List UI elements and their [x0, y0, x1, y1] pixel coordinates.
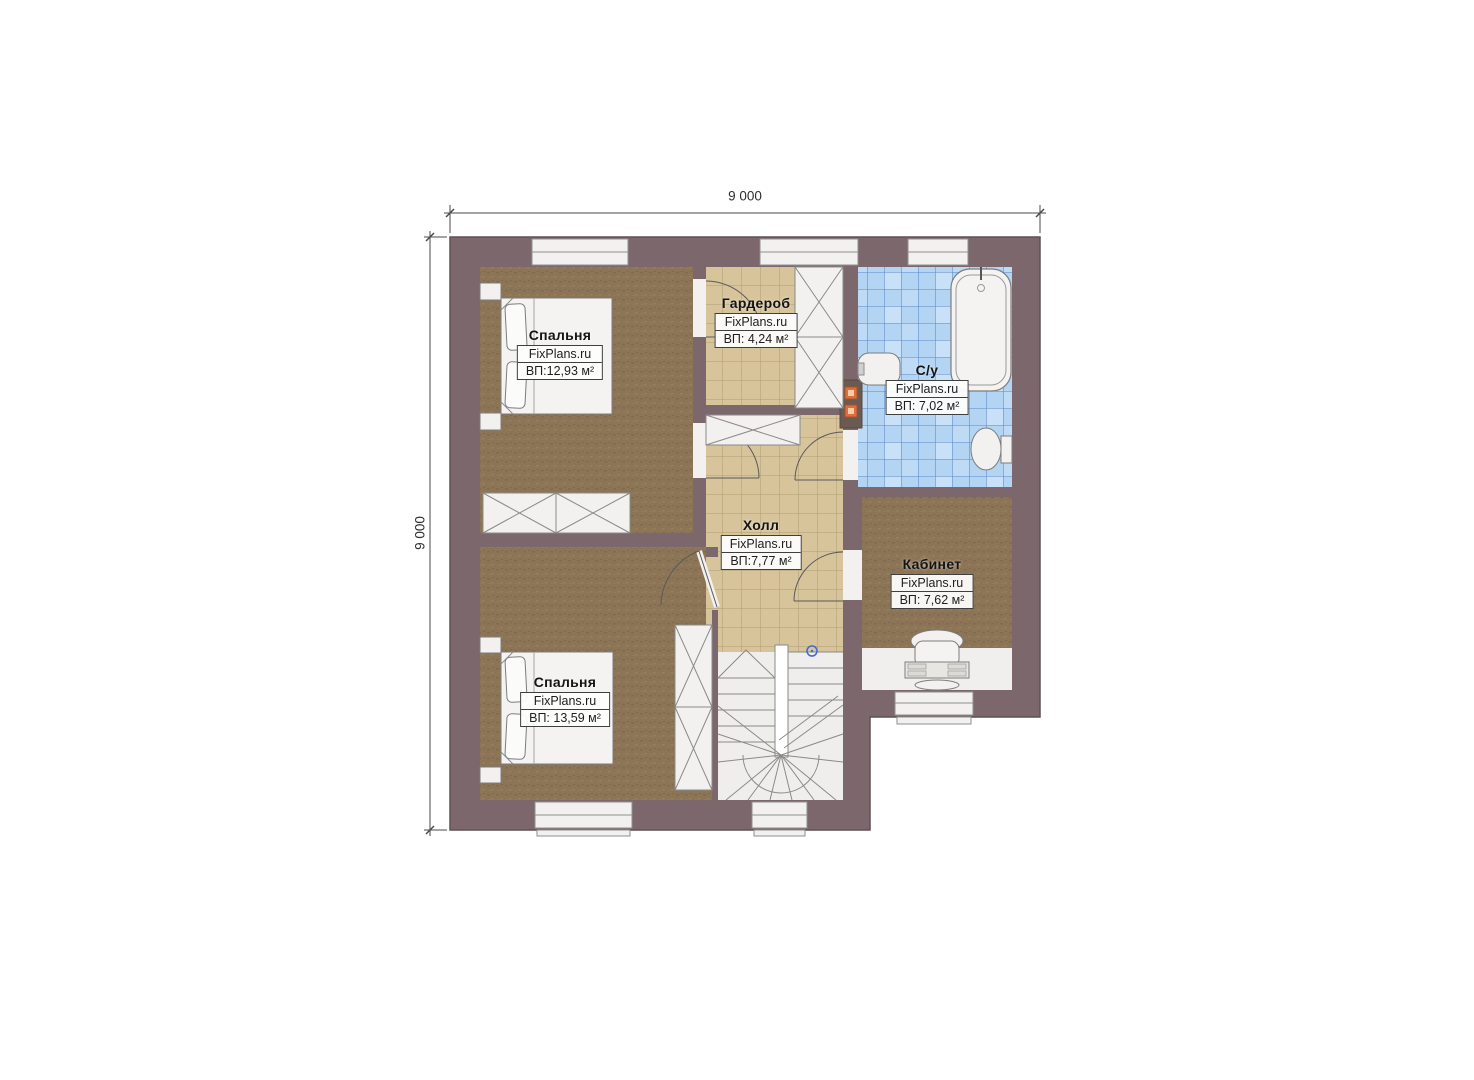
window: [760, 239, 858, 265]
nightstand: [480, 637, 501, 653]
window: [752, 802, 807, 836]
floor-plan-canvas: 9 000 9 000 Спальня FixPlans.ru ВП:12,93…: [0, 0, 1474, 1080]
watermark-text: FixPlans.ru: [722, 536, 801, 553]
room-label-hall: Холл FixPlans.ru ВП:7,77 м²: [721, 517, 802, 570]
washbasin-tap: [858, 363, 864, 375]
room-title: Кабинет: [891, 556, 974, 572]
door-opening: [843, 430, 858, 480]
dimension-left-label: 9 000: [413, 516, 428, 550]
toilet-tank: [1001, 436, 1012, 463]
room-area: ВП:7,77 м²: [722, 553, 801, 569]
room-title: Спальня: [520, 674, 610, 690]
room-title: Гардероб: [715, 295, 798, 311]
room-info-box: FixPlans.ru ВП:12,93 м²: [517, 345, 603, 380]
nightstand: [480, 413, 501, 430]
room-label-wardrobe: Гардероб FixPlans.ru ВП: 4,24 м²: [715, 295, 798, 348]
room-area: ВП: 7,62 м²: [892, 592, 973, 608]
stair-divider: [775, 645, 788, 757]
room-title: Холл: [721, 517, 802, 533]
watermark-text: FixPlans.ru: [892, 575, 973, 592]
door-opening: [693, 423, 706, 478]
room-label-bedroom-2: Спальня FixPlans.ru ВП: 13,59 м²: [520, 674, 610, 727]
nightstand: [480, 283, 501, 300]
room-label-bathroom: С/у FixPlans.ru ВП: 7,02 м²: [886, 362, 969, 415]
nightstand: [480, 767, 501, 783]
room-area: ВП: 7,02 м²: [887, 398, 968, 414]
door-opening: [693, 279, 706, 337]
watermark-text: FixPlans.ru: [716, 314, 797, 331]
window: [895, 692, 973, 724]
closet-hall: [706, 415, 800, 445]
room-info-box: FixPlans.ru ВП: 13,59 м²: [520, 692, 610, 727]
door-opening: [843, 550, 862, 600]
room-label-bedroom-1: Спальня FixPlans.ru ВП:12,93 м²: [517, 327, 603, 380]
watermark-text: FixPlans.ru: [518, 346, 602, 363]
window: [532, 239, 628, 265]
room-info-box: FixPlans.ru ВП: 7,02 м²: [886, 380, 969, 415]
dimension-top-label: 9 000: [728, 189, 762, 204]
window: [535, 802, 632, 836]
desk-tray: [915, 680, 959, 690]
closet-bedroom-1: [483, 493, 630, 533]
room-area: ВП: 4,24 м²: [716, 331, 797, 347]
window: [908, 239, 968, 265]
closet-bedroom-2: [675, 625, 712, 790]
room-info-box: FixPlans.ru ВП:7,77 м²: [721, 535, 802, 570]
room-info-box: FixPlans.ru ВП: 4,24 м²: [715, 313, 798, 348]
room-label-office: Кабинет FixPlans.ru ВП: 7,62 м²: [891, 556, 974, 609]
room-title: С/у: [886, 362, 969, 378]
watermark-text: FixPlans.ru: [521, 693, 609, 710]
watermark-text: FixPlans.ru: [887, 381, 968, 398]
closet-wardrobe: [795, 267, 843, 408]
room-area: ВП:12,93 м²: [518, 363, 602, 379]
room-area: ВП: 13,59 м²: [521, 710, 609, 726]
room-info-box: FixPlans.ru ВП: 7,62 м²: [891, 574, 974, 609]
room-title: Спальня: [517, 327, 603, 343]
